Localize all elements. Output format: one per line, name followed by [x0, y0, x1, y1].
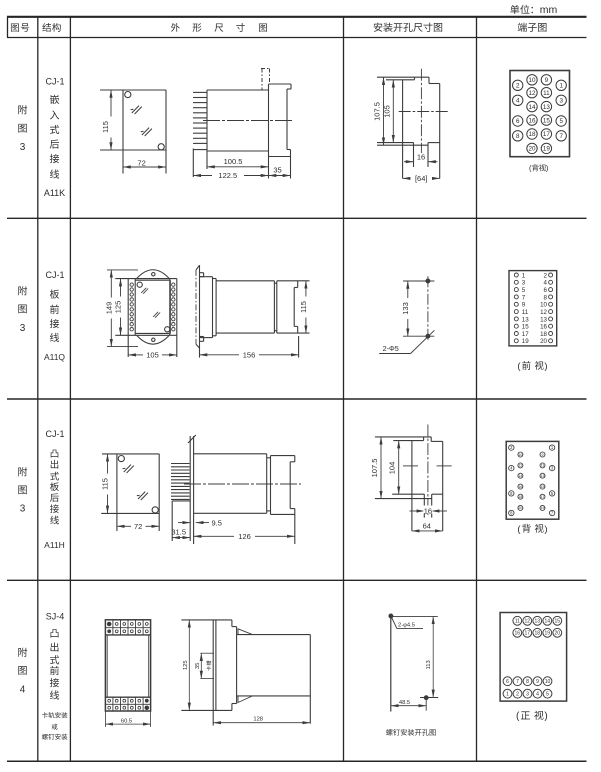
svg-text:115: 115: [299, 301, 308, 313]
svg-text:1: 1: [522, 272, 526, 279]
svg-text:156: 156: [243, 351, 256, 360]
svg-text:5: 5: [551, 491, 554, 496]
svg-text:3: 3: [20, 504, 26, 515]
svg-text:6: 6: [506, 679, 509, 685]
svg-text:115: 115: [101, 121, 110, 133]
svg-text:72: 72: [134, 522, 142, 531]
svg-text:105: 105: [146, 351, 159, 360]
svg-text:CJ-1: CJ-1: [45, 270, 64, 280]
svg-text:5: 5: [559, 118, 563, 125]
svg-text:9.5: 9.5: [212, 518, 222, 527]
svg-text:2-Φ5: 2-Φ5: [383, 344, 399, 353]
svg-text:17: 17: [541, 495, 545, 499]
svg-text:18: 18: [528, 131, 536, 138]
svg-text:3: 3: [526, 692, 529, 698]
svg-text:13: 13: [541, 474, 545, 478]
svg-text:107.5: 107.5: [370, 459, 379, 478]
svg-text:12: 12: [528, 90, 536, 97]
svg-text:100.5: 100.5: [224, 157, 243, 166]
svg-text:9: 9: [536, 679, 539, 685]
svg-text:): ): [546, 164, 549, 173]
svg-text:15: 15: [555, 619, 561, 625]
svg-text:7: 7: [559, 133, 563, 140]
svg-text:CJ-1: CJ-1: [45, 77, 64, 87]
svg-text:10: 10: [545, 679, 551, 685]
svg-text:8: 8: [510, 511, 513, 516]
svg-text:113: 113: [426, 660, 432, 669]
svg-text:18: 18: [540, 331, 547, 338]
svg-text:16: 16: [518, 485, 522, 489]
svg-text:107.5: 107.5: [373, 102, 382, 121]
svg-text:72: 72: [137, 158, 145, 167]
svg-text:3: 3: [559, 98, 563, 105]
svg-text:19: 19: [522, 338, 529, 345]
svg-text:104: 104: [388, 462, 397, 475]
svg-text:(: (: [529, 164, 532, 173]
svg-text:4: 4: [510, 466, 513, 471]
svg-text:16: 16: [424, 506, 432, 515]
svg-text:4: 4: [536, 692, 539, 698]
svg-text:17: 17: [543, 131, 551, 138]
svg-text:13: 13: [543, 104, 551, 111]
svg-text:1: 1: [506, 692, 509, 698]
svg-text:8: 8: [526, 679, 529, 685]
svg-text:126: 126: [238, 532, 251, 541]
svg-text:2-φ4.5: 2-φ4.5: [398, 623, 415, 629]
svg-text:105: 105: [382, 105, 391, 118]
svg-text:): ): [544, 361, 547, 372]
svg-text:35: 35: [273, 165, 281, 174]
svg-text:20: 20: [555, 631, 561, 637]
svg-text:7: 7: [551, 511, 554, 516]
svg-text:3: 3: [20, 142, 26, 153]
svg-text:4: 4: [516, 98, 520, 105]
svg-text:4: 4: [544, 280, 548, 287]
svg-text:9: 9: [522, 302, 526, 309]
svg-text:6: 6: [516, 118, 520, 125]
svg-text:(: (: [516, 711, 520, 722]
svg-text:17: 17: [522, 331, 529, 338]
svg-text:1: 1: [551, 445, 554, 450]
svg-text:35: 35: [195, 663, 201, 669]
svg-text:CJ-1: CJ-1: [45, 429, 64, 439]
svg-text:2: 2: [544, 272, 548, 279]
svg-text:128: 128: [253, 717, 263, 723]
svg-text:1: 1: [559, 83, 563, 90]
svg-text:6: 6: [510, 491, 513, 496]
svg-text:133: 133: [401, 302, 410, 315]
svg-text:115: 115: [101, 478, 110, 490]
svg-text:[64]: [64]: [415, 174, 428, 183]
svg-text:19: 19: [541, 506, 545, 510]
svg-text:20: 20: [528, 146, 536, 153]
svg-text:10: 10: [518, 453, 522, 457]
svg-text:2: 2: [510, 445, 513, 450]
svg-text:7: 7: [516, 679, 519, 685]
svg-text:8: 8: [544, 294, 548, 301]
svg-text:5: 5: [522, 287, 526, 294]
svg-text:3: 3: [20, 323, 26, 334]
svg-text:16: 16: [417, 152, 425, 161]
svg-text:19: 19: [543, 146, 551, 153]
svg-text:122.5: 122.5: [218, 171, 237, 180]
svg-text:A11H: A11H: [44, 540, 65, 550]
svg-text:12: 12: [540, 309, 547, 316]
svg-text:125: 125: [114, 301, 123, 314]
svg-text:A11Q: A11Q: [44, 352, 65, 362]
svg-text:4: 4: [20, 685, 26, 696]
svg-text:19: 19: [545, 631, 551, 637]
svg-text:16: 16: [528, 117, 536, 124]
svg-text:149: 149: [104, 302, 113, 315]
svg-text:16: 16: [515, 631, 521, 637]
svg-text:60.5: 60.5: [121, 718, 132, 724]
svg-text:SJ-4: SJ-4: [46, 612, 65, 622]
svg-text:31.5: 31.5: [171, 527, 186, 536]
svg-text:17: 17: [525, 631, 531, 637]
svg-text:15: 15: [541, 485, 545, 489]
svg-text:): ): [544, 524, 547, 535]
svg-text:48.5: 48.5: [399, 700, 410, 706]
svg-text:18: 18: [518, 495, 522, 499]
svg-text:64: 64: [423, 521, 431, 530]
svg-text:11: 11: [515, 619, 520, 625]
svg-text:10: 10: [528, 77, 536, 84]
svg-text:11: 11: [543, 90, 550, 97]
svg-text:7: 7: [522, 294, 526, 301]
svg-text:10: 10: [540, 302, 547, 309]
svg-text:A11K: A11K: [44, 188, 65, 198]
svg-text:8: 8: [516, 133, 520, 140]
svg-text:12: 12: [518, 464, 522, 468]
svg-text:11: 11: [541, 464, 545, 468]
svg-text:18: 18: [535, 631, 541, 637]
svg-text:20: 20: [540, 338, 547, 345]
svg-text:20: 20: [518, 506, 522, 510]
svg-text:6: 6: [544, 287, 548, 294]
svg-text:15: 15: [543, 117, 551, 124]
svg-text:13: 13: [540, 316, 547, 323]
svg-text:15: 15: [522, 324, 529, 331]
svg-text:2: 2: [516, 692, 519, 698]
svg-text:5: 5: [546, 692, 549, 698]
svg-text:14: 14: [528, 104, 536, 111]
svg-text:3: 3: [551, 466, 554, 471]
svg-text:): ): [544, 711, 547, 722]
svg-text:3: 3: [522, 280, 526, 287]
svg-text:9: 9: [545, 77, 549, 84]
svg-text:mm: mm: [540, 4, 558, 16]
svg-text:12: 12: [525, 619, 531, 625]
svg-text:2: 2: [516, 83, 520, 90]
svg-text:9: 9: [542, 453, 544, 457]
svg-text:14: 14: [518, 474, 522, 478]
svg-text:13: 13: [522, 316, 529, 323]
svg-text:(: (: [517, 361, 521, 372]
svg-text:125: 125: [183, 660, 189, 670]
svg-text:14: 14: [545, 619, 551, 625]
svg-text:13: 13: [535, 619, 541, 625]
svg-text:11: 11: [522, 309, 529, 316]
svg-text:16: 16: [540, 324, 547, 331]
svg-text:(: (: [517, 524, 521, 535]
